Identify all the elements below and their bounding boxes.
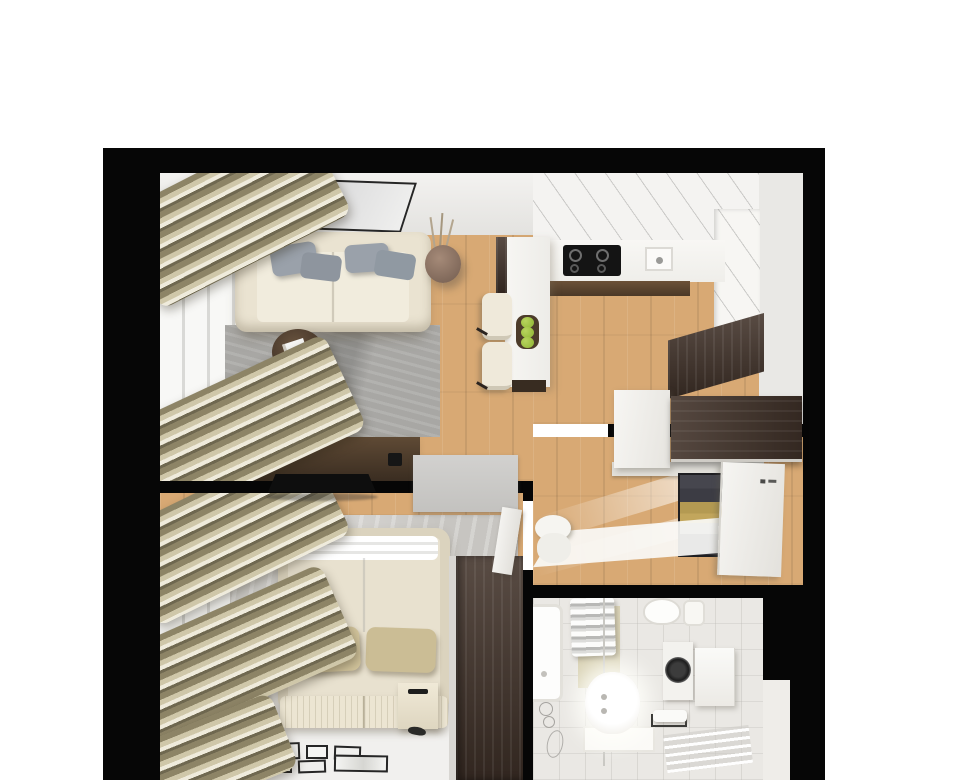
bed-pillow	[365, 627, 436, 673]
wire-decor	[539, 702, 553, 716]
door-handle	[768, 480, 776, 483]
wall-top	[103, 148, 825, 173]
toilet-tank	[683, 600, 705, 626]
sofa-pillow	[300, 252, 343, 283]
burner	[570, 264, 579, 273]
apple-tray	[516, 315, 539, 349]
bedroom-wardrobe	[456, 556, 523, 780]
room-kitchen	[533, 173, 803, 424]
hall-white-cabinet	[614, 390, 670, 468]
cooktop	[563, 245, 621, 276]
floor-plan-render	[0, 0, 960, 780]
towel-radiator	[570, 598, 616, 657]
floor-picture-frame	[334, 755, 388, 773]
wall-left	[103, 148, 160, 780]
wall-right	[803, 148, 825, 595]
apple	[521, 337, 534, 348]
nightstand	[398, 683, 438, 729]
wardrobe-edge	[449, 556, 456, 780]
living-tv	[268, 474, 376, 492]
wall-bath-right	[790, 680, 825, 780]
room-bedroom	[160, 493, 523, 780]
shower-control	[601, 708, 607, 714]
bathtub	[533, 604, 563, 702]
burner	[569, 249, 582, 262]
kitchen-right-wall	[759, 173, 803, 424]
hall-wardrobe	[671, 396, 802, 462]
kitchen-chair	[482, 342, 512, 390]
desk-chair-seat	[537, 533, 571, 563]
burner	[596, 249, 609, 262]
bedroom-desk	[413, 455, 518, 512]
wall-hall-bathroom	[523, 585, 825, 598]
door-lock	[760, 479, 765, 483]
sink	[645, 247, 673, 271]
shower	[585, 672, 640, 734]
toilet	[643, 598, 705, 628]
floor-picture-frame	[298, 760, 326, 774]
burner	[597, 264, 606, 273]
room-bathroom	[533, 598, 790, 780]
wall-bedroom-hall-upper	[523, 481, 533, 501]
bathroom-right-wall	[763, 680, 790, 780]
wall-bedroom-hall-lower	[523, 570, 533, 780]
floor-picture-frame	[306, 745, 328, 759]
washing-machine	[663, 642, 693, 700]
counter	[533, 240, 725, 282]
toilet-bowl	[643, 598, 681, 625]
sink-drain	[656, 257, 663, 264]
living-tv-shadow	[266, 493, 378, 501]
nightstand-handle	[408, 689, 428, 694]
entrance-door	[717, 462, 785, 577]
wall-bath-notch	[763, 595, 825, 680]
desk-chair	[535, 515, 575, 567]
bath-cabinet	[695, 648, 735, 706]
counter-face	[548, 281, 690, 296]
wire-decor	[543, 716, 555, 728]
floor-towel	[653, 710, 687, 722]
tub-faucet	[541, 671, 547, 677]
peninsula-foot	[512, 380, 546, 392]
remote-dock	[388, 453, 402, 466]
vase	[425, 245, 461, 283]
washer-drum	[665, 657, 691, 683]
peninsula-dark-face	[496, 237, 507, 293]
shower-control	[601, 694, 607, 700]
